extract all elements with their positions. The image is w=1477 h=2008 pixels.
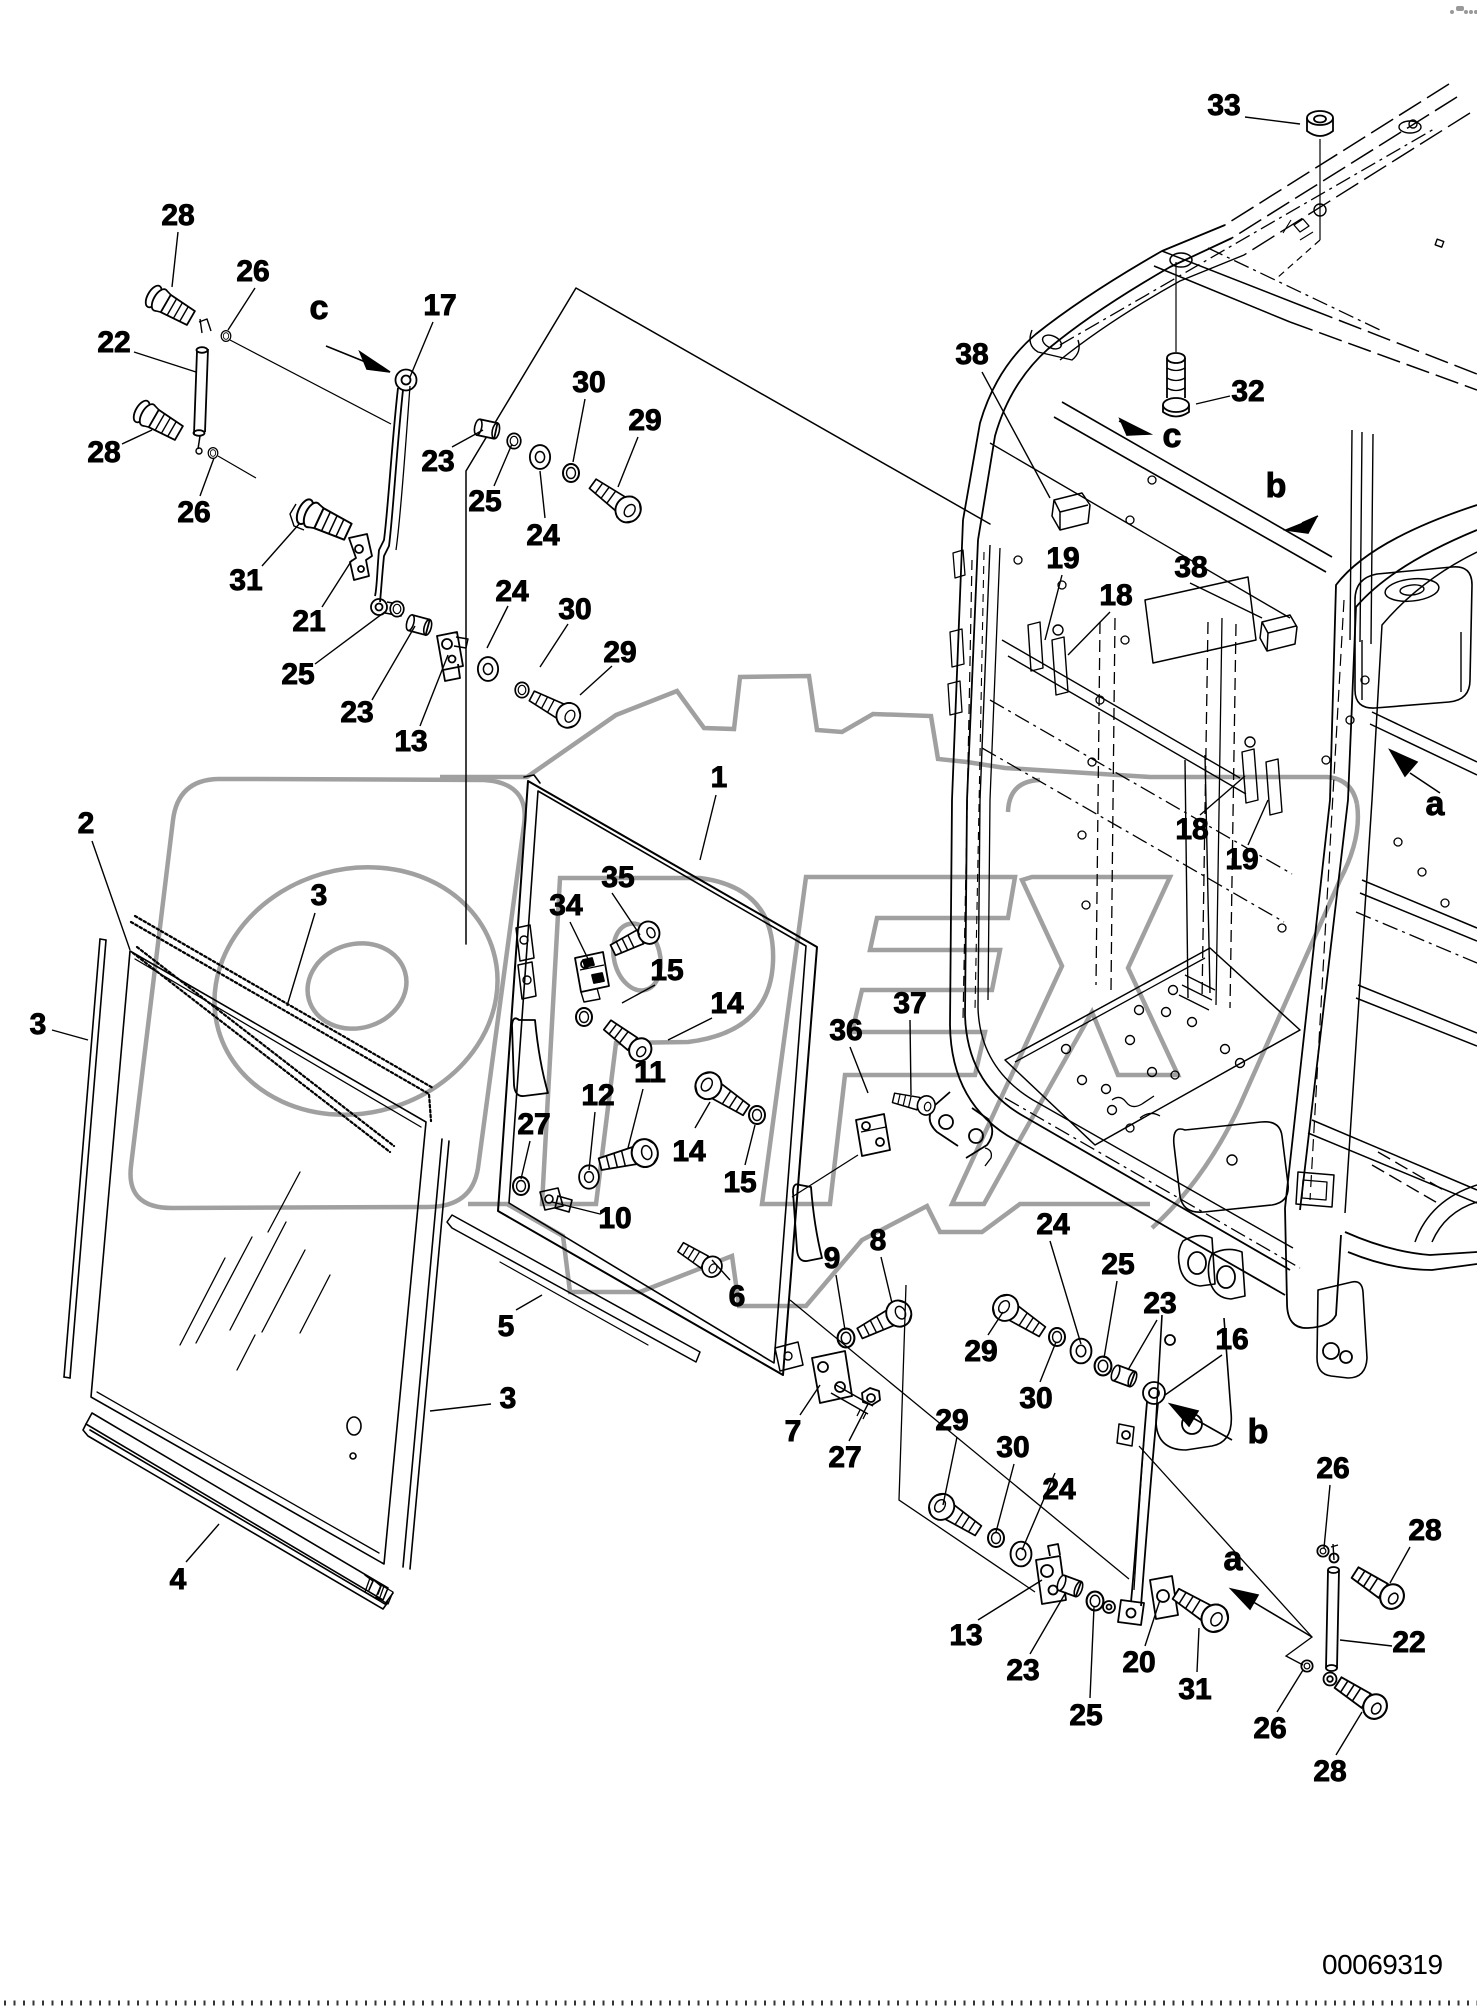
svg-text:33: 33 [1207,89,1240,122]
svg-text:31: 31 [1178,1673,1211,1706]
svg-text:34: 34 [549,889,583,922]
svg-text:3: 3 [311,879,328,912]
svg-text:29: 29 [964,1335,997,1368]
svg-text:23: 23 [1006,1654,1039,1687]
svg-text:18: 18 [1099,579,1132,612]
svg-text:26: 26 [1253,1712,1286,1745]
svg-text:11: 11 [634,1056,666,1089]
svg-text:30: 30 [558,593,591,626]
svg-text:25: 25 [1069,1699,1102,1732]
svg-text:38: 38 [955,338,988,371]
svg-text:17: 17 [423,289,456,322]
svg-text:38: 38 [1174,551,1207,584]
svg-text:21: 21 [292,605,325,638]
svg-text:27: 27 [828,1441,861,1474]
svg-text:36: 36 [829,1014,862,1047]
svg-text:28: 28 [1408,1514,1441,1547]
svg-text:1: 1 [711,761,728,794]
svg-text:25: 25 [281,658,314,691]
svg-text:32: 32 [1231,375,1264,408]
svg-text:30: 30 [1019,1382,1052,1415]
svg-text:c: c [1163,417,1182,455]
svg-text:00069319: 00069319 [1322,1949,1443,1980]
svg-text:10: 10 [598,1202,631,1235]
svg-text:26: 26 [177,496,210,529]
svg-text:35: 35 [601,861,634,894]
svg-text:29: 29 [603,636,636,669]
svg-text:b: b [1248,1413,1269,1451]
svg-text:a: a [1426,785,1446,823]
svg-text:3: 3 [500,1382,517,1415]
svg-text:29: 29 [628,404,661,437]
svg-text:4: 4 [170,1563,187,1596]
svg-text:14: 14 [710,987,744,1020]
svg-text:31: 31 [229,564,262,597]
svg-text:14: 14 [672,1135,706,1168]
svg-text:24: 24 [495,575,529,608]
svg-text:18: 18 [1175,813,1208,846]
svg-text:9: 9 [824,1242,841,1275]
svg-text:24: 24 [1036,1208,1070,1241]
svg-text:30: 30 [996,1431,1029,1464]
svg-text:8: 8 [870,1224,887,1257]
svg-text:28: 28 [1313,1755,1346,1788]
svg-text:16: 16 [1215,1323,1248,1356]
svg-text:24: 24 [526,519,560,552]
svg-text:23: 23 [340,696,373,729]
svg-text:15: 15 [723,1166,756,1199]
svg-text:23: 23 [421,445,454,478]
svg-text:37: 37 [893,987,926,1020]
svg-text:29: 29 [935,1404,968,1437]
svg-text:25: 25 [468,485,501,518]
svg-text:27: 27 [517,1108,550,1141]
svg-text:28: 28 [161,199,194,232]
svg-text:b: b [1266,467,1287,505]
svg-text:22: 22 [97,326,130,359]
svg-text:c: c [310,289,329,327]
svg-text:20: 20 [1122,1646,1155,1679]
svg-text:26: 26 [1316,1452,1349,1485]
svg-text:19: 19 [1046,542,1079,575]
svg-text:24: 24 [1042,1473,1076,1506]
svg-text:15: 15 [650,954,683,987]
svg-text:23: 23 [1143,1287,1176,1320]
svg-text:26: 26 [236,255,269,288]
svg-text:28: 28 [87,436,120,469]
svg-text:12: 12 [581,1079,614,1112]
svg-text:25: 25 [1101,1248,1134,1281]
svg-text:2: 2 [78,807,95,840]
svg-text:13: 13 [949,1619,982,1652]
svg-text:3: 3 [30,1008,47,1041]
svg-text:5: 5 [498,1310,515,1343]
svg-text:22: 22 [1392,1626,1425,1659]
svg-text:7: 7 [785,1415,802,1448]
svg-text:30: 30 [572,366,605,399]
svg-text:6: 6 [729,1280,746,1313]
svg-text:13: 13 [394,725,427,758]
svg-text:19: 19 [1225,843,1258,876]
svg-text:a: a [1224,1540,1244,1578]
